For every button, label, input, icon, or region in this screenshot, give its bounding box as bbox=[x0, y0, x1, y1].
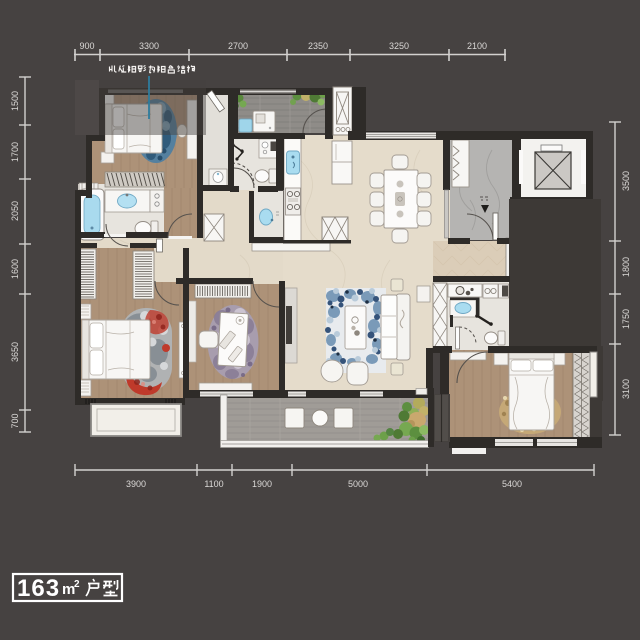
svg-text:3500: 3500 bbox=[621, 171, 631, 191]
svg-text:2700: 2700 bbox=[228, 41, 248, 51]
svg-text:2350: 2350 bbox=[308, 41, 328, 51]
svg-text:1800: 1800 bbox=[621, 257, 631, 277]
svg-text:1500: 1500 bbox=[10, 91, 20, 111]
svg-text:1700: 1700 bbox=[10, 142, 20, 162]
svg-text:2050: 2050 bbox=[10, 201, 20, 221]
svg-text:1900: 1900 bbox=[252, 479, 272, 489]
svg-text:3100: 3100 bbox=[621, 379, 631, 399]
svg-text:2100: 2100 bbox=[467, 41, 487, 51]
svg-text:1750: 1750 bbox=[621, 309, 631, 329]
svg-text:5400: 5400 bbox=[502, 479, 522, 489]
svg-text:163: 163 bbox=[17, 575, 60, 602]
svg-text:3250: 3250 bbox=[389, 41, 409, 51]
svg-text:5000: 5000 bbox=[348, 479, 368, 489]
svg-text:1100: 1100 bbox=[204, 479, 223, 489]
svg-text:3900: 3900 bbox=[126, 479, 146, 489]
svg-text:1600: 1600 bbox=[10, 259, 20, 279]
svg-text:3650: 3650 bbox=[10, 342, 20, 362]
svg-text:2: 2 bbox=[74, 579, 80, 590]
svg-text:700: 700 bbox=[10, 413, 20, 428]
svg-text:3300: 3300 bbox=[139, 41, 159, 51]
svg-text:900: 900 bbox=[79, 41, 94, 51]
